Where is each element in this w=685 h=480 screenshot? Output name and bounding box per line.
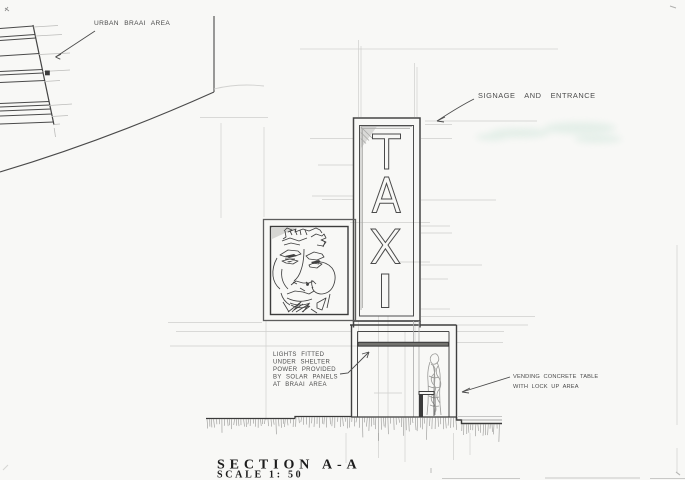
svg-text:URBAN BRAAI AREA: URBAN BRAAI AREA: [94, 20, 170, 27]
svg-text:SCALE 1: 50: SCALE 1: 50: [217, 470, 303, 480]
svg-text:VENDING CONCRETE TABLE: VENDING CONCRETE TABLE: [513, 374, 598, 380]
svg-text:WITH LOCK UP AREA: WITH LOCK UP AREA: [513, 384, 579, 390]
svg-text:SIGNAGE AND ENTRANCE: SIGNAGE AND ENTRANCE: [478, 91, 596, 100]
svg-text:AT BRAAI AREA: AT BRAAI AREA: [273, 382, 327, 388]
svg-text:POWER PROVIDED: POWER PROVIDED: [273, 367, 336, 373]
svg-text:LIGHTS FITTED: LIGHTS FITTED: [273, 352, 325, 358]
svg-text:UNDER SHELTER: UNDER SHELTER: [273, 360, 330, 366]
svg-text:BY SOLAR PANELS: BY SOLAR PANELS: [273, 375, 338, 381]
